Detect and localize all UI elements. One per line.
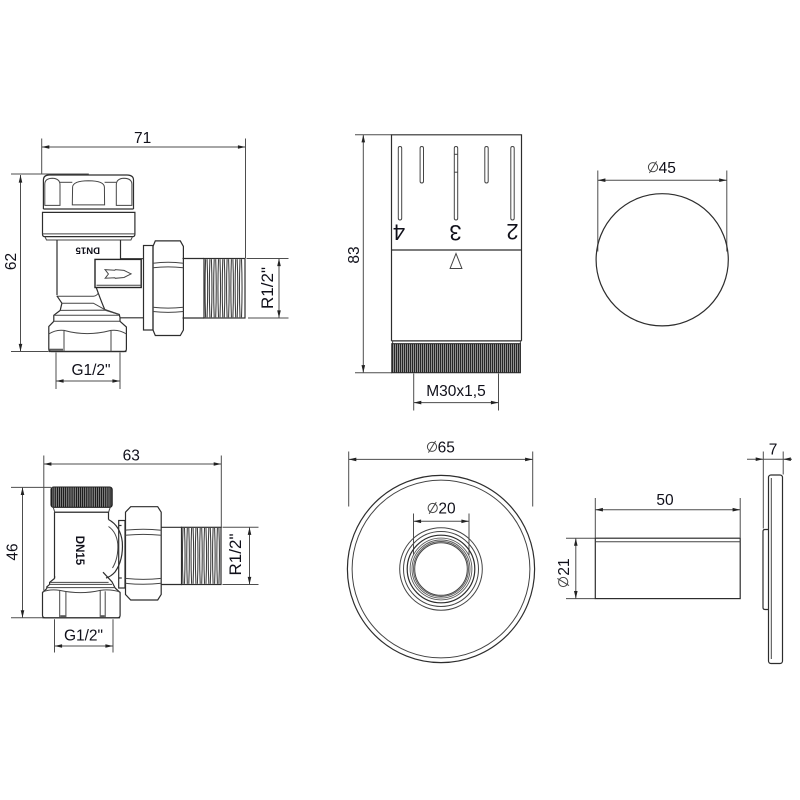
svg-text:R1/2": R1/2" (258, 267, 277, 309)
svg-text:4: 4 (393, 220, 405, 245)
svg-text:R1/2": R1/2" (226, 534, 245, 576)
svg-text:62: 62 (3, 253, 20, 270)
svg-text:M30x1,5: M30x1,5 (426, 383, 485, 400)
svg-text:DN15: DN15 (75, 245, 100, 256)
svg-text:83: 83 (346, 246, 363, 263)
svg-text:21: 21 (556, 558, 573, 575)
svg-text:63: 63 (123, 447, 140, 464)
svg-text:3: 3 (449, 220, 461, 245)
svg-text:45: 45 (659, 160, 676, 177)
svg-text:20: 20 (438, 501, 456, 518)
svg-text:G1/2": G1/2" (64, 627, 103, 644)
svg-text:46: 46 (5, 543, 22, 560)
svg-text:7: 7 (769, 442, 778, 459)
svg-text:2: 2 (506, 219, 518, 244)
svg-text:DN15: DN15 (73, 536, 85, 566)
svg-text:71: 71 (134, 130, 151, 147)
svg-text:G1/2": G1/2" (71, 362, 110, 379)
svg-text:50: 50 (656, 492, 674, 509)
svg-text:65: 65 (438, 439, 455, 456)
